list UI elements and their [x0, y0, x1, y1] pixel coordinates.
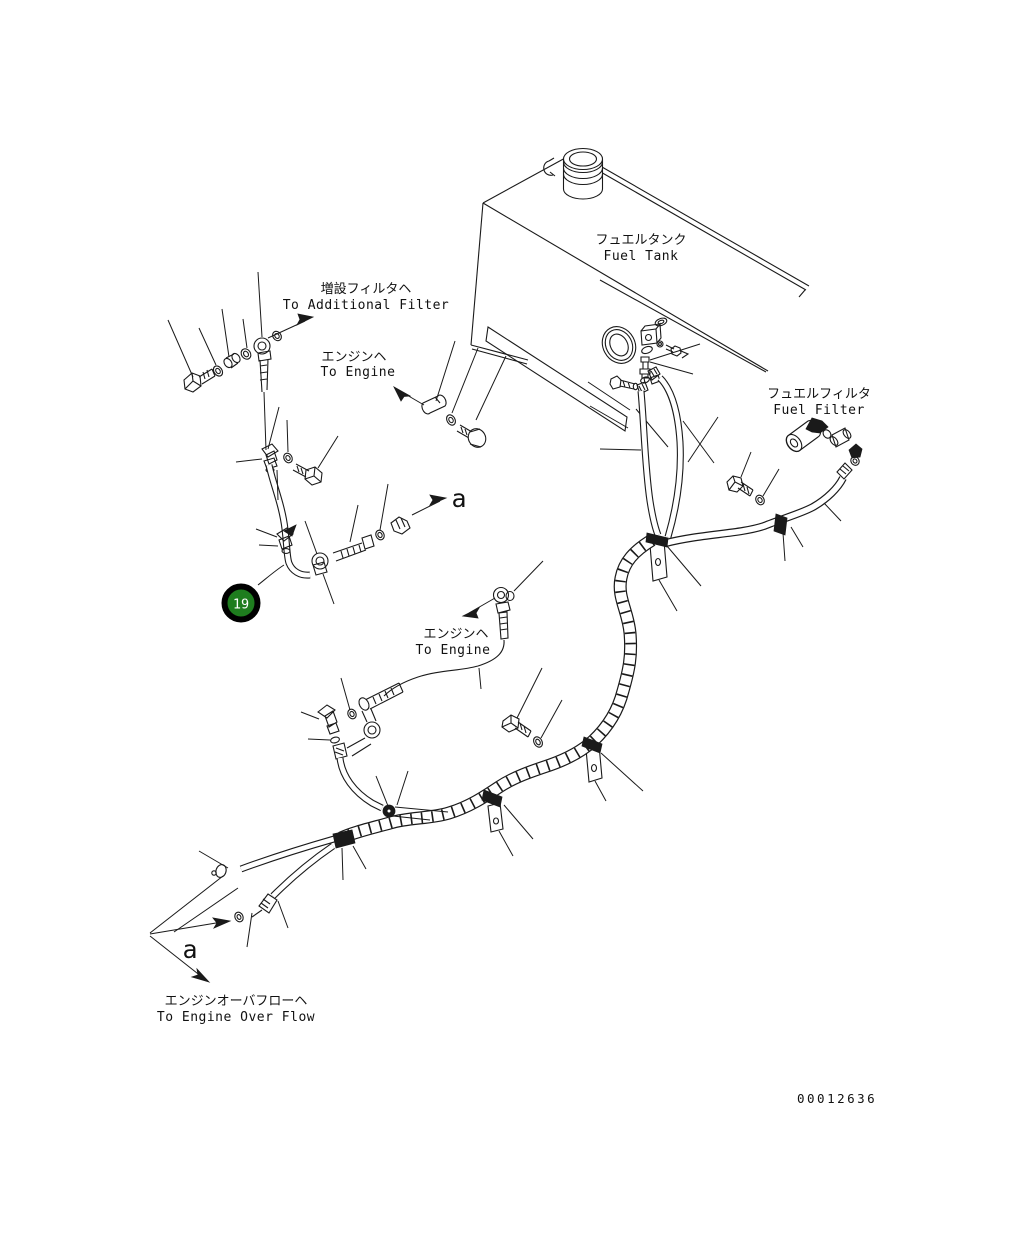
arrow-to-additional-filter — [268, 314, 313, 338]
label-fuel-filter-en: Fuel Filter — [773, 403, 865, 418]
filter-hose-clamp — [774, 514, 787, 535]
labels: 増設フィルタヘ To Additional Filter エンジンヘ To En… — [157, 233, 877, 1106]
arrow-to-engine-upper — [394, 387, 424, 405]
bolt-5 — [502, 715, 531, 737]
filler-neck — [544, 149, 603, 200]
label-view-a-lower: a — [182, 935, 197, 964]
hose-end-fitting-lower — [233, 894, 277, 923]
label-to-engine-overflow-jp: エンジンオーバフローヘ — [165, 994, 308, 1009]
leader-lines-tank-area — [588, 344, 718, 463]
bolt — [293, 464, 322, 485]
label-to-engine-2-jp: エンジンヘ — [423, 627, 488, 642]
clamp-band-4 — [333, 830, 355, 848]
label-fuel-tank-jp: フュエルタンク — [595, 233, 686, 248]
parts-diagram-page: 19 増設フィルタヘ To Additional Filter エンジンヘ To… — [0, 0, 1027, 1254]
hose-clamps — [333, 514, 787, 848]
label-to-engine-overflow-en: To Engine Over Flow — [157, 1010, 315, 1025]
clamp-plate-3 — [488, 803, 503, 832]
arrow-to-engine-middle — [463, 598, 495, 618]
fuel-tank-outline — [471, 157, 809, 431]
bolt — [184, 369, 215, 392]
label-to-engine-2-en: To Engine — [416, 643, 491, 658]
label-fuel-filter-jp: フュエルフィルタ — [767, 387, 871, 402]
hose-fitting — [333, 743, 347, 759]
balloon-leader — [258, 565, 284, 585]
drawing-number: 00012636 — [797, 1091, 877, 1106]
label-to-additional-filter-jp: 増設フィルタヘ — [321, 281, 412, 297]
filter-mount-bolt — [727, 476, 753, 496]
filter-outlet-elbow — [849, 444, 862, 458]
arrow-view-a-upper — [412, 495, 446, 515]
sleeve — [422, 395, 446, 414]
tank-outlet-fittings — [610, 317, 688, 394]
elbow-fitting-4 — [318, 705, 340, 744]
fuel-piping-diagram: 19 増設フィルタヘ To Additional Filter エンジンヘ To… — [0, 0, 1027, 1254]
twin-fuel-lines — [641, 378, 680, 537]
drain-bolt — [610, 376, 635, 389]
overflow-hoses — [212, 839, 334, 923]
taper-fitting — [391, 517, 410, 534]
part-balloon-19[interactable]: 19 — [225, 587, 258, 620]
label-to-engine-1-jp: エンジンヘ — [321, 350, 386, 365]
balloon-number: 19 — [233, 597, 249, 613]
union-nipple — [333, 535, 374, 561]
banjo-fitting-2 — [312, 553, 328, 575]
spacer — [222, 352, 241, 369]
banjo-bolt — [494, 588, 515, 640]
label-view-a-upper: a — [451, 484, 466, 513]
label-to-additional-filter-en: To Additional Filter — [283, 298, 450, 313]
hose-end-fitting-upper — [212, 863, 228, 878]
banjo-fitting — [254, 338, 271, 392]
label-to-engine-1-en: To Engine — [321, 365, 396, 380]
fuel-sender-unit — [596, 321, 642, 370]
bolt — [457, 425, 489, 450]
arrow-to-engine-overflow — [150, 936, 209, 982]
label-fuel-tank-en: Fuel Tank — [604, 249, 679, 264]
